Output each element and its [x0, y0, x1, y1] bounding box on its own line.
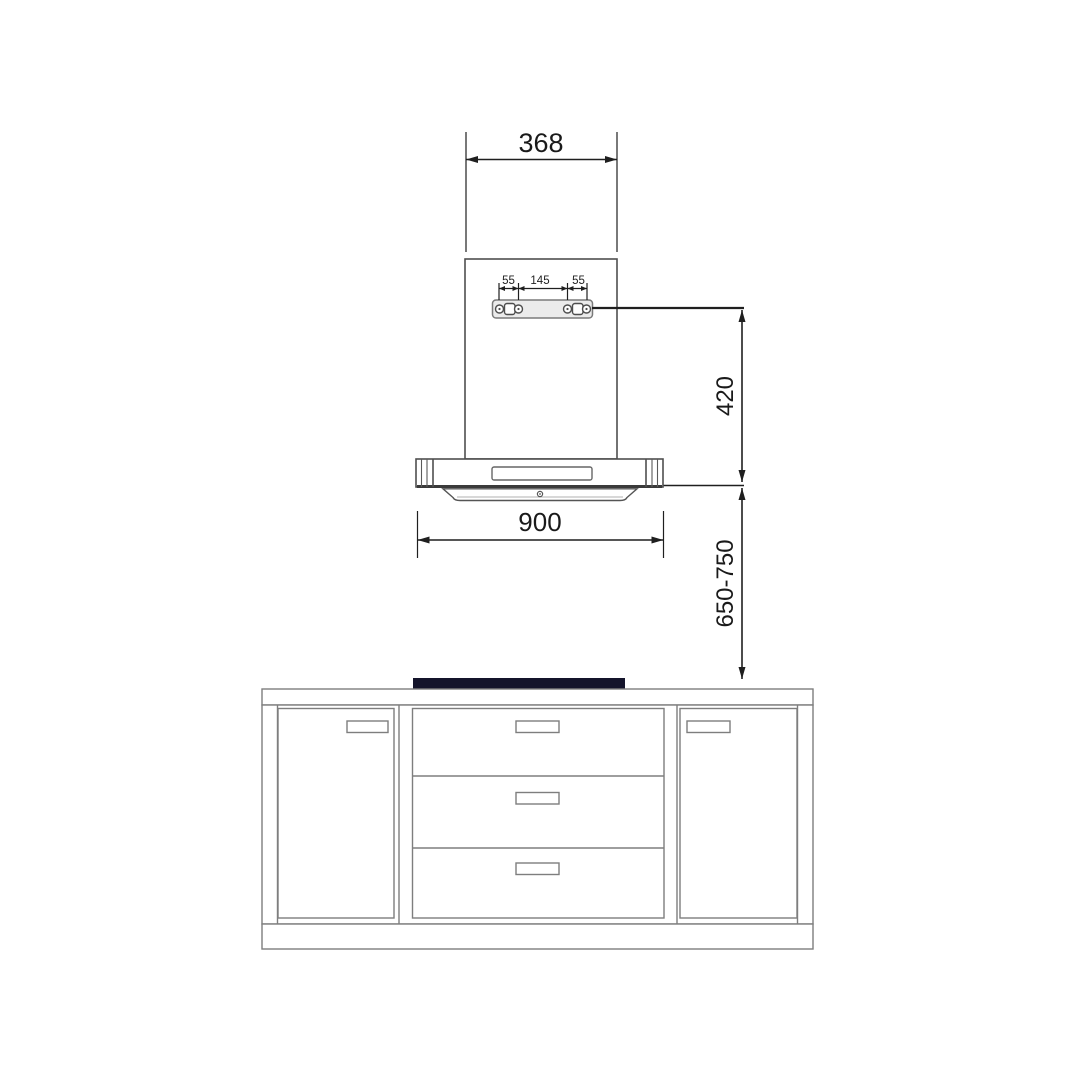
- dim-label-145: 145: [530, 275, 549, 287]
- dim-label-420: 420: [712, 376, 739, 416]
- dim-bracket-to-hood-bottom: 420: [712, 310, 742, 482]
- countertop: [262, 689, 813, 705]
- range-hood: [416, 459, 663, 501]
- door-right-handle: [687, 721, 730, 733]
- cabinet-door-left: [278, 709, 394, 919]
- hood-light-dot: [539, 493, 541, 495]
- mounting-bracket: [493, 300, 593, 318]
- dim-label-368: 368: [518, 128, 563, 158]
- cabinet-drawer-stack: [413, 709, 665, 919]
- dim-hood-to-cooktop: 650-750: [712, 488, 742, 679]
- bracket-holes-right: [564, 304, 591, 315]
- dim-label-650-750: 650-750: [712, 539, 739, 627]
- cooktop: [413, 678, 625, 689]
- base-cabinet: [262, 678, 813, 949]
- drawer-3-handle: [516, 863, 559, 875]
- cabinet-door-right: [680, 709, 797, 919]
- door-left-handle: [347, 721, 388, 733]
- dim-duct-width: 368: [466, 128, 617, 252]
- dim-hood-width: 900: [418, 507, 664, 558]
- drawer-stack-outline: [413, 709, 665, 919]
- dim-label-900: 900: [518, 507, 561, 537]
- dim-label-55-left: 55: [502, 275, 515, 287]
- installation-diagram-page: 368 55 145 55: [0, 0, 1080, 1080]
- cabinet-plinth: [262, 924, 813, 949]
- hood-vent-panel: [492, 467, 592, 480]
- drawer-1-handle: [516, 721, 559, 733]
- bracket-holes-left: [496, 304, 523, 315]
- drawer-2-handle: [516, 793, 559, 805]
- dim-label-55-right: 55: [572, 275, 585, 287]
- range-hood-installation-diagram: 368 55 145 55: [0, 0, 1080, 1080]
